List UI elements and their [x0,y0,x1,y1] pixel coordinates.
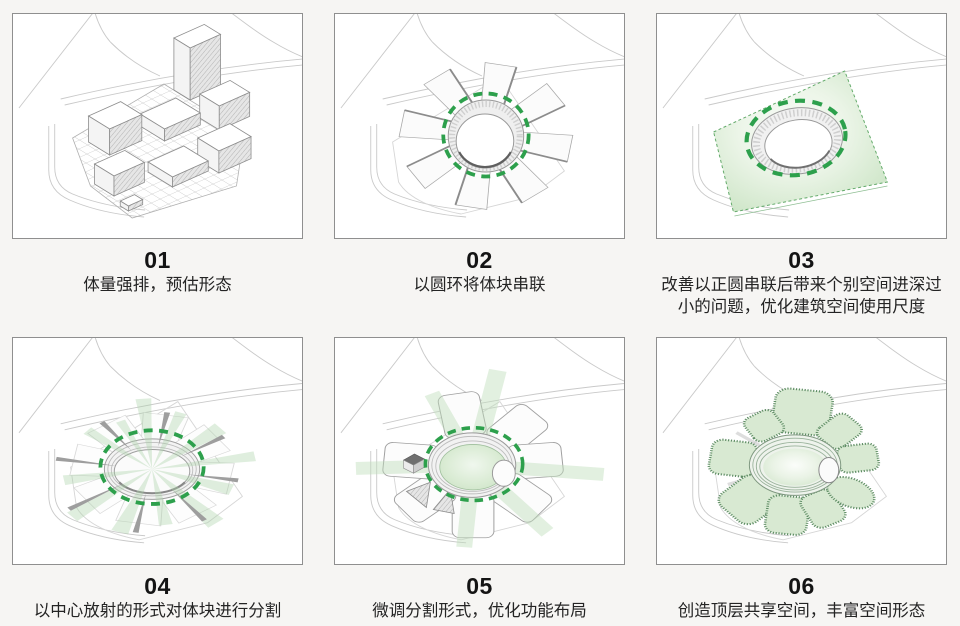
step-3-panel [656,13,947,239]
step-2: 02 以圆环将体块串联 [334,13,625,337]
step-caption: 微调分割形式，优化功能布局 [334,601,625,623]
step-number: 04 [12,573,303,599]
diagram-step-2-ring-link [335,14,624,238]
step-caption: 以圆环将体块串联 [334,275,625,297]
step-4-panel [12,337,303,565]
step-caption: 以中心放射的形式对体块进行分割 [12,601,303,623]
step-5: 05 微调分割形式，优化功能布局 [334,337,625,626]
step-6-panel [656,337,947,565]
step-number: 01 [12,247,303,273]
step-caption: 体量强排，预估形态 [12,275,303,297]
step-caption: 创造顶层共享空间，丰富空间形态 [656,601,947,623]
oval-annex-block [492,460,515,486]
diagram-step-4-radial-split [13,338,302,564]
step-6: 06 创造顶层共享空间，丰富空间形态 [656,337,947,626]
step-4: 04 以中心放射的形式对体块进行分割 [12,337,303,626]
ring-building [448,100,523,172]
diagram-step-1-massing-blocks [13,14,302,238]
step-number: 06 [656,573,947,599]
massing-diagram-sheet: 01 体量强排，预估形态 [0,0,960,626]
step-number: 02 [334,247,625,273]
diagram-step-5-function-layout [335,338,624,564]
oval-annex-block [819,458,839,483]
step-number: 05 [334,573,625,599]
step-3: 03 改善以正圆串联后带来个别空间进深过小的问题，优化建筑空间使用尺度 [656,13,947,337]
step-number: 03 [656,247,947,273]
step-1-panel [12,13,303,239]
diagram-step-6-green-roofs [657,338,946,564]
step-5-panel [334,337,625,565]
step-caption: 改善以正圆串联后带来个别空间进深过小的问题，优化建筑空间使用尺度 [656,275,947,319]
diagram-step-3-site-plane [657,14,946,238]
step-2-panel [334,13,625,239]
step-1: 01 体量强排，预估形态 [12,13,303,337]
